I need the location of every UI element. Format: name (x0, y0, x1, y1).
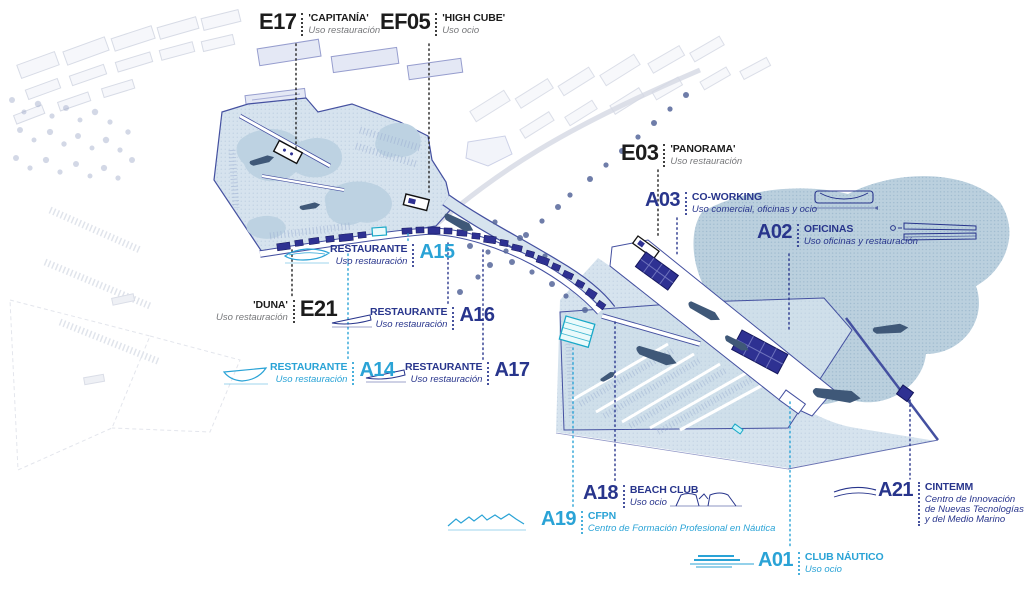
label-e17-code: E17 (259, 12, 296, 33)
label-ef05-code: EF05 (380, 12, 430, 33)
label-e21-name: 'DUNA' (216, 300, 288, 312)
label-a02-code: A02 (757, 223, 792, 242)
label-e21: 'DUNA' Uso restauración E21 (216, 299, 337, 323)
dotted-separator (301, 13, 303, 36)
label-e21-code: E21 (300, 299, 337, 320)
label-a02-desc: Uso oficinas y restauración (804, 237, 918, 247)
label-a14-code: A14 (359, 361, 394, 380)
dotted-separator (918, 482, 920, 526)
curved-roof-sketch (832, 484, 878, 504)
label-a01-name: CLUB NÁUTICO (805, 552, 884, 564)
label-ef05-name: 'HIGH CUBE' (442, 13, 505, 25)
label-ef05: EF05 'HIGH CUBE' Uso ocio (380, 12, 505, 36)
label-a17-desc: Uso restauración (405, 375, 482, 385)
boat-plan-sketch (283, 246, 331, 266)
boat-plan-sketch (222, 364, 270, 386)
label-e17: E17 'CAPITANÍA' Uso restauración (259, 12, 380, 36)
label-a01-desc: Uso ocio (805, 565, 884, 575)
label-a15: RESTAURANTE Uso restauración A15 (330, 243, 454, 267)
label-e03-desc: Uso restauración (670, 157, 742, 167)
label-a18-desc: Uso ocio (630, 498, 698, 508)
label-a03-code: A03 (645, 191, 680, 210)
dotted-separator (623, 485, 625, 508)
label-e17-desc: Uso restauración (308, 26, 380, 36)
label-a17-code: A17 (494, 361, 529, 380)
dotted-separator (412, 244, 414, 267)
label-a21-desc: Centro de Innovación de Nuevas Tecnologí… (925, 495, 1024, 526)
label-a16-desc: Uso restauración (370, 320, 447, 330)
label-a17-name: RESTAURANTE (405, 362, 482, 374)
label-a19-code: A19 (541, 510, 576, 529)
dotted-separator (685, 192, 687, 215)
dotted-separator (581, 511, 583, 534)
label-a17: RESTAURANTE Uso restauración A17 (405, 361, 529, 385)
label-a18: A18 BEACH CLUB Uso ocio (583, 484, 698, 508)
label-a16: RESTAURANTE Uso restauración A16 (370, 306, 494, 330)
dotted-separator (452, 307, 454, 330)
label-a19-name: CFPN (588, 511, 775, 523)
label-a03-desc: Uso comercial, oficinas y ocio (692, 205, 817, 215)
dotted-separator (487, 362, 489, 385)
label-a02-name: OFICINAS (804, 224, 918, 236)
label-e21-desc: Uso restauración (216, 313, 288, 323)
dotted-separator (293, 300, 295, 323)
city-blocks (14, 10, 241, 124)
label-a14-name: RESTAURANTE (270, 362, 347, 374)
site-plan-page: E17 'CAPITANÍA' Uso restauración EF05 'H… (0, 0, 1024, 593)
sawtooth-roof-sketch (446, 512, 530, 534)
label-a18-code: A18 (583, 484, 618, 503)
dotted-separator (663, 144, 665, 167)
label-e03-name: 'PANORAMA' (670, 144, 742, 156)
label-a03-name: CO-WORKING (692, 192, 817, 204)
dotted-separator (435, 13, 437, 36)
label-a15-code: A15 (419, 243, 454, 262)
label-a01: A01 CLUB NÁUTICO Uso ocio (758, 551, 884, 575)
left-docks-faint (10, 210, 240, 470)
label-e03-code: E03 (621, 143, 658, 164)
label-a02: A02 OFICINAS Uso oficinas y restauración (757, 223, 918, 247)
deck-lines-sketch (684, 553, 756, 573)
dotted-separator (797, 224, 799, 247)
label-ef05-desc: Uso ocio (442, 26, 505, 36)
label-a19-desc: Centro de Formación Profesional en Náuti… (588, 524, 775, 534)
label-e03: E03 'PANORAMA' Uso restauración (621, 143, 742, 167)
label-a01-code: A01 (758, 551, 793, 570)
dotted-separator (798, 552, 800, 575)
label-a15-name: RESTAURANTE (330, 244, 407, 256)
label-a18-name: BEACH CLUB (630, 485, 698, 497)
label-a03: A03 CO-WORKING Uso comercial, oficinas y… (645, 191, 817, 215)
building-section-sketch (812, 188, 880, 212)
dotted-separator (352, 362, 354, 385)
label-a21: A21 CINTEMM Centro de Innovación de Nuev… (878, 481, 1024, 526)
label-a16-code: A16 (459, 306, 494, 325)
park-trees (9, 97, 135, 181)
label-a14: RESTAURANTE Uso restauración A14 (270, 361, 394, 385)
label-a21-name: CINTEMM (925, 482, 1024, 494)
label-a15-desc: Uso restauración (330, 257, 407, 267)
site-plan-map (0, 0, 1024, 593)
restaurant-a15-building (372, 227, 387, 236)
label-a14-desc: Uso restauración (270, 375, 347, 385)
label-e17-name: 'CAPITANÍA' (308, 13, 380, 25)
label-a19: A19 CFPN Centro de Formación Profesional… (541, 510, 775, 534)
label-a16-name: RESTAURANTE (370, 307, 447, 319)
label-a21-code: A21 (878, 481, 913, 500)
